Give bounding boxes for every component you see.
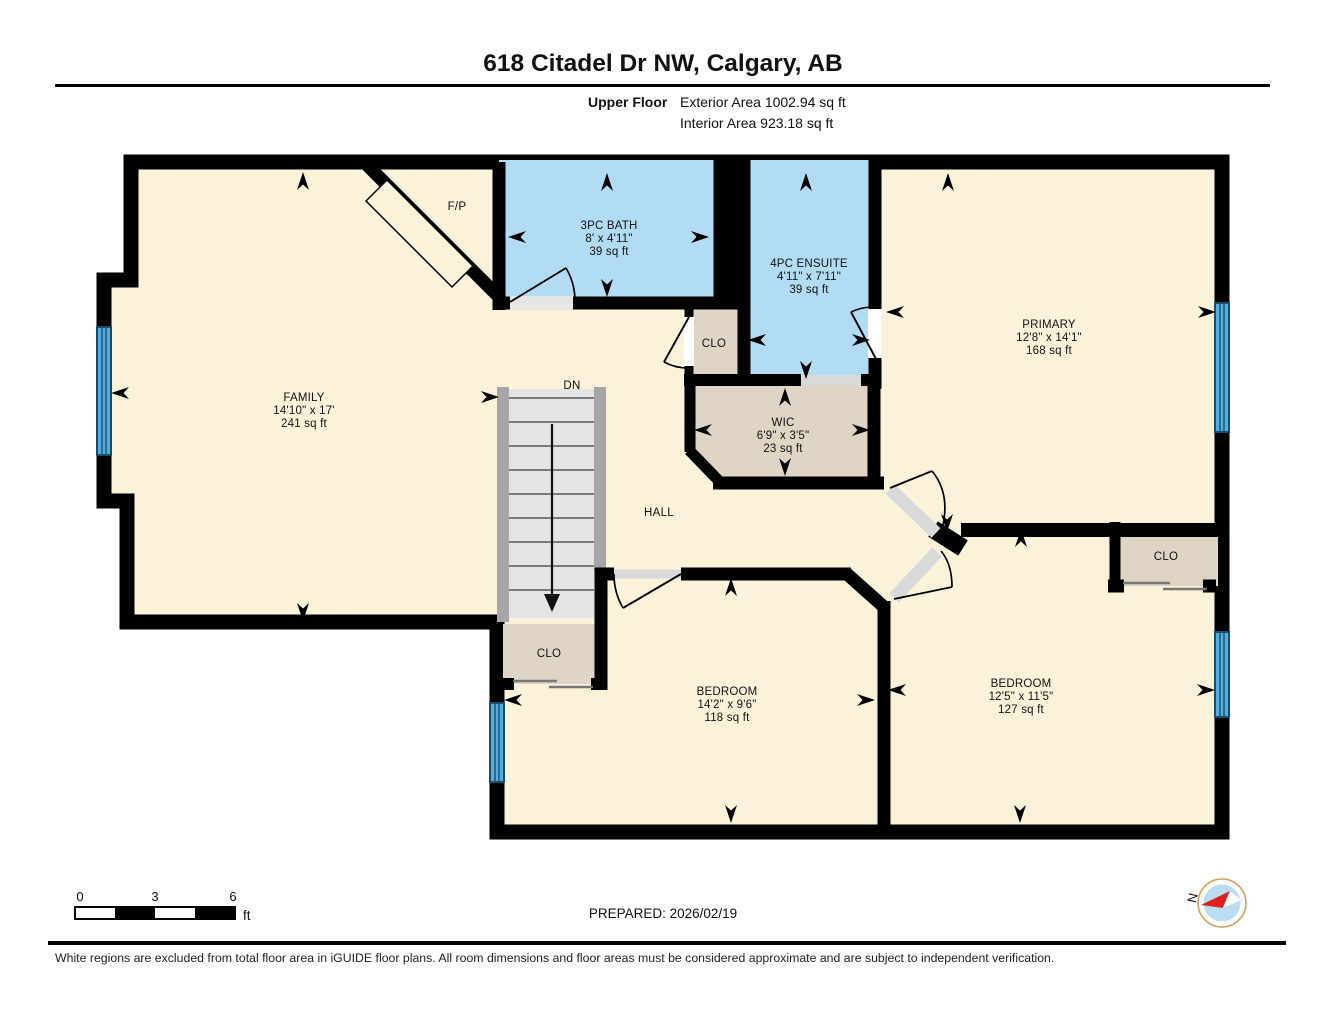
closet-stairs-label: CLO — [537, 648, 562, 660]
ensuite-door-gap — [868, 309, 881, 358]
footer-divider — [48, 941, 1286, 945]
family-dims: 14'10" x 17' — [273, 405, 334, 417]
stair-wall-right — [594, 387, 606, 570]
family-area: 241 sq ft — [281, 418, 328, 430]
scale-unit: ft — [243, 908, 251, 923]
bath-door-threshold — [510, 296, 573, 310]
primary-area: 168 sq ft — [1026, 345, 1073, 357]
stairs-dn-label: DN — [563, 380, 580, 392]
scale-6: 6 — [229, 889, 236, 904]
bath-name: 3PC BATH — [581, 220, 638, 232]
primary-name: PRIMARY — [1022, 319, 1076, 331]
exterior-area: Exterior Area 1002.94 sq ft — [680, 94, 846, 110]
scale-segment-dark — [115, 907, 155, 919]
bedroom-right-dims: 12'5" x 11'5" — [989, 691, 1054, 703]
bedroom-right-name: BEDROOM — [991, 678, 1052, 690]
ensuite-area: 39 sq ft — [789, 284, 829, 296]
window-bedroom-left-west — [490, 703, 504, 782]
scale-0: 0 — [76, 889, 83, 904]
header: 618 Citadel Dr NW, Calgary, AB Upper Flo… — [55, 50, 1270, 131]
bath-area: 39 sq ft — [589, 246, 629, 258]
interior-area: Interior Area 923.18 sq ft — [680, 115, 833, 131]
bedroom-left-name: BEDROOM — [697, 686, 758, 698]
ensuite-name: 4PC ENSUITE — [770, 258, 848, 270]
header-divider — [55, 84, 1270, 87]
bedroom-left-dims: 14'2" x 9'6" — [697, 699, 756, 711]
closet-mid-label: CLO — [702, 338, 727, 350]
wic-area: 23 sq ft — [763, 443, 803, 455]
label-bedroom-right: BEDROOM 12'5" x 11'5" 127 sq ft — [989, 678, 1054, 716]
floorplan-canvas: 618 Citadel Dr NW, Calgary, AB Upper Flo… — [0, 0, 1325, 1024]
label-bedroom-left: BEDROOM 14'2" x 9'6" 118 sq ft — [697, 686, 758, 724]
closet-bedroom-label: CLO — [1154, 551, 1179, 563]
scale-3: 3 — [151, 889, 158, 904]
window-bedroom-right-east — [1215, 632, 1229, 717]
scale-bar: 0 3 6 ft — [75, 889, 251, 923]
floorplan-page: 618 Citadel Dr NW, Calgary, AB Upper Flo… — [0, 0, 1325, 1024]
stair-wall-left — [497, 387, 509, 622]
fireplace-label: F/P — [448, 201, 467, 213]
family-name: FAMILY — [283, 392, 324, 404]
wic-name: WIC — [772, 417, 795, 429]
window-family-west — [97, 327, 111, 455]
compass-icon: N — [1184, 879, 1246, 927]
scale-segment-dark — [195, 907, 235, 919]
floor-label: Upper Floor — [588, 94, 668, 110]
footer: 0 3 6 ft PREPARED: 2026/02/19 N White re… — [48, 879, 1286, 965]
wic-dims: 6'9" x 3'5" — [757, 430, 809, 442]
prepared-date: PREPARED: 2026/02/19 — [589, 906, 737, 921]
compass-north-label: N — [1184, 892, 1201, 904]
staircase — [497, 387, 606, 622]
disclaimer-text: White regions are excluded from total fl… — [55, 951, 1054, 965]
page-title: 618 Citadel Dr NW, Calgary, AB — [483, 50, 842, 77]
window-primary-east — [1215, 303, 1229, 432]
bedroom-right-area: 127 sq ft — [998, 704, 1045, 716]
bedroom-left-area: 118 sq ft — [704, 712, 750, 724]
hall-label: HALL — [644, 507, 674, 519]
room-fills — [104, 160, 1222, 832]
ensuite-dims: 4'11" x 7'11" — [777, 271, 841, 283]
primary-dims: 12'8" x 14'1" — [1016, 332, 1082, 344]
bath-dims: 8' x 4'11" — [585, 233, 632, 245]
